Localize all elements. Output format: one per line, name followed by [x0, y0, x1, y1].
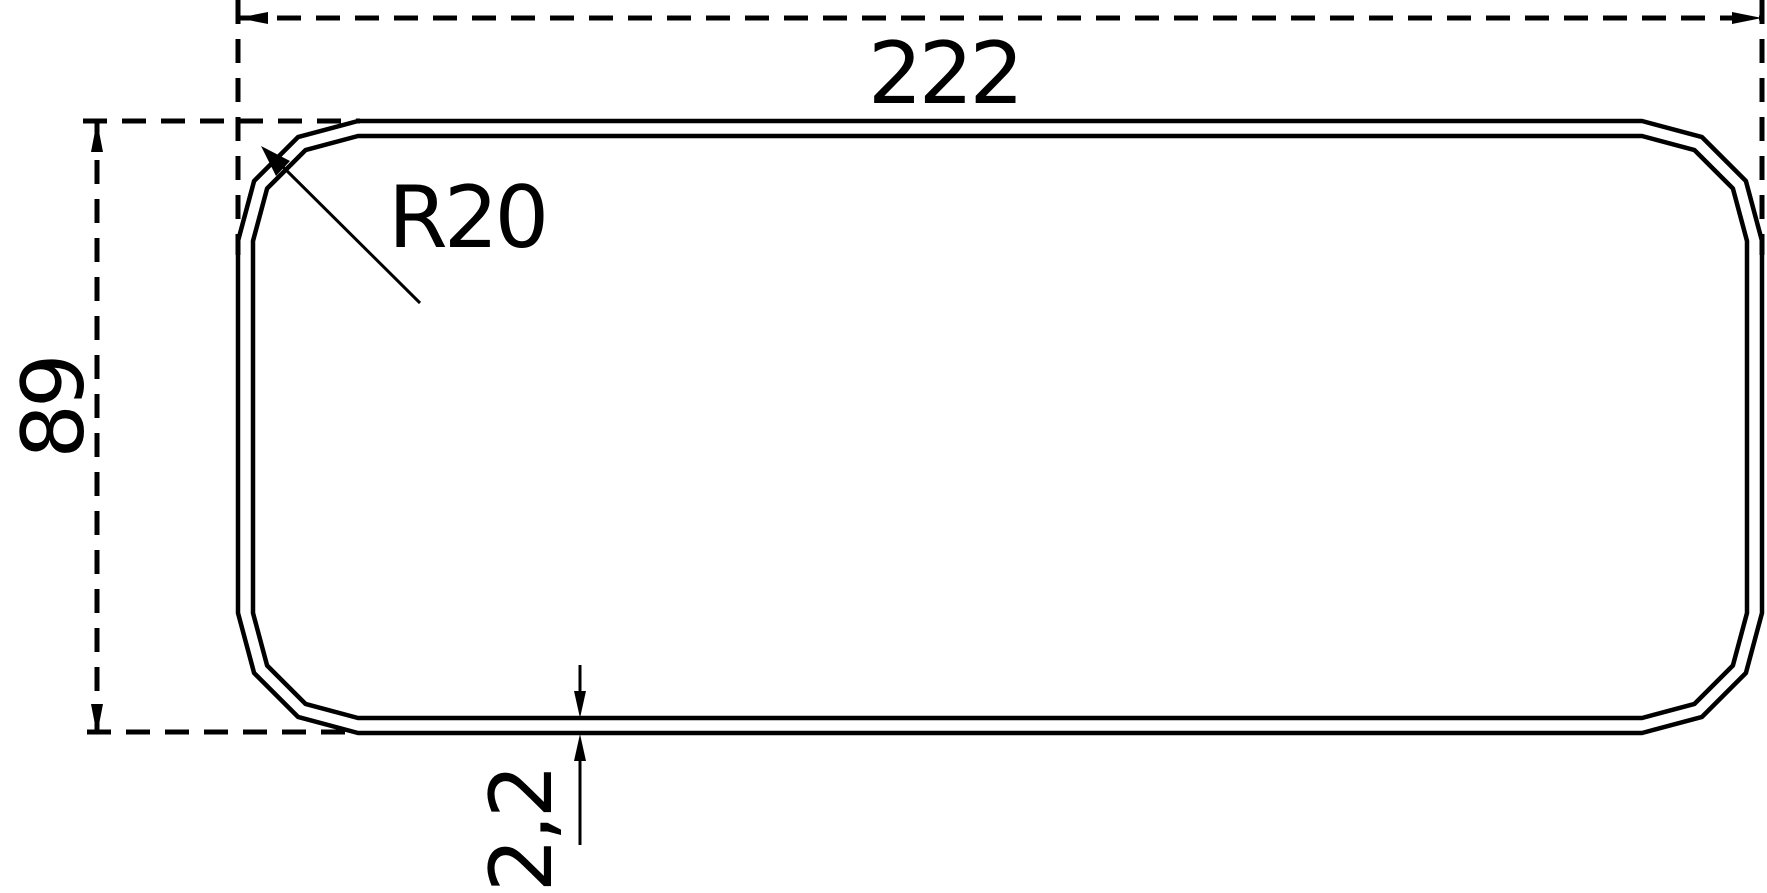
width-arrow-right: [1732, 12, 1762, 24]
technical-drawing: 222 89 R20 2,2: [0, 0, 1767, 893]
thickness-arrow-down: [574, 691, 586, 718]
height-arrow-top: [91, 121, 103, 152]
height-dimension-label: 89: [4, 357, 104, 458]
thickness-arrow-up: [574, 734, 586, 761]
thickness-label: 2,2: [472, 768, 572, 893]
radius-callout: R20: [261, 146, 545, 303]
height-dimension: 89: [4, 121, 360, 735]
thickness-dimension: 2,2: [472, 665, 586, 892]
radius-label: R20: [388, 168, 545, 268]
width-arrow-left: [238, 12, 268, 24]
width-dimension-label: 222: [868, 24, 1020, 124]
